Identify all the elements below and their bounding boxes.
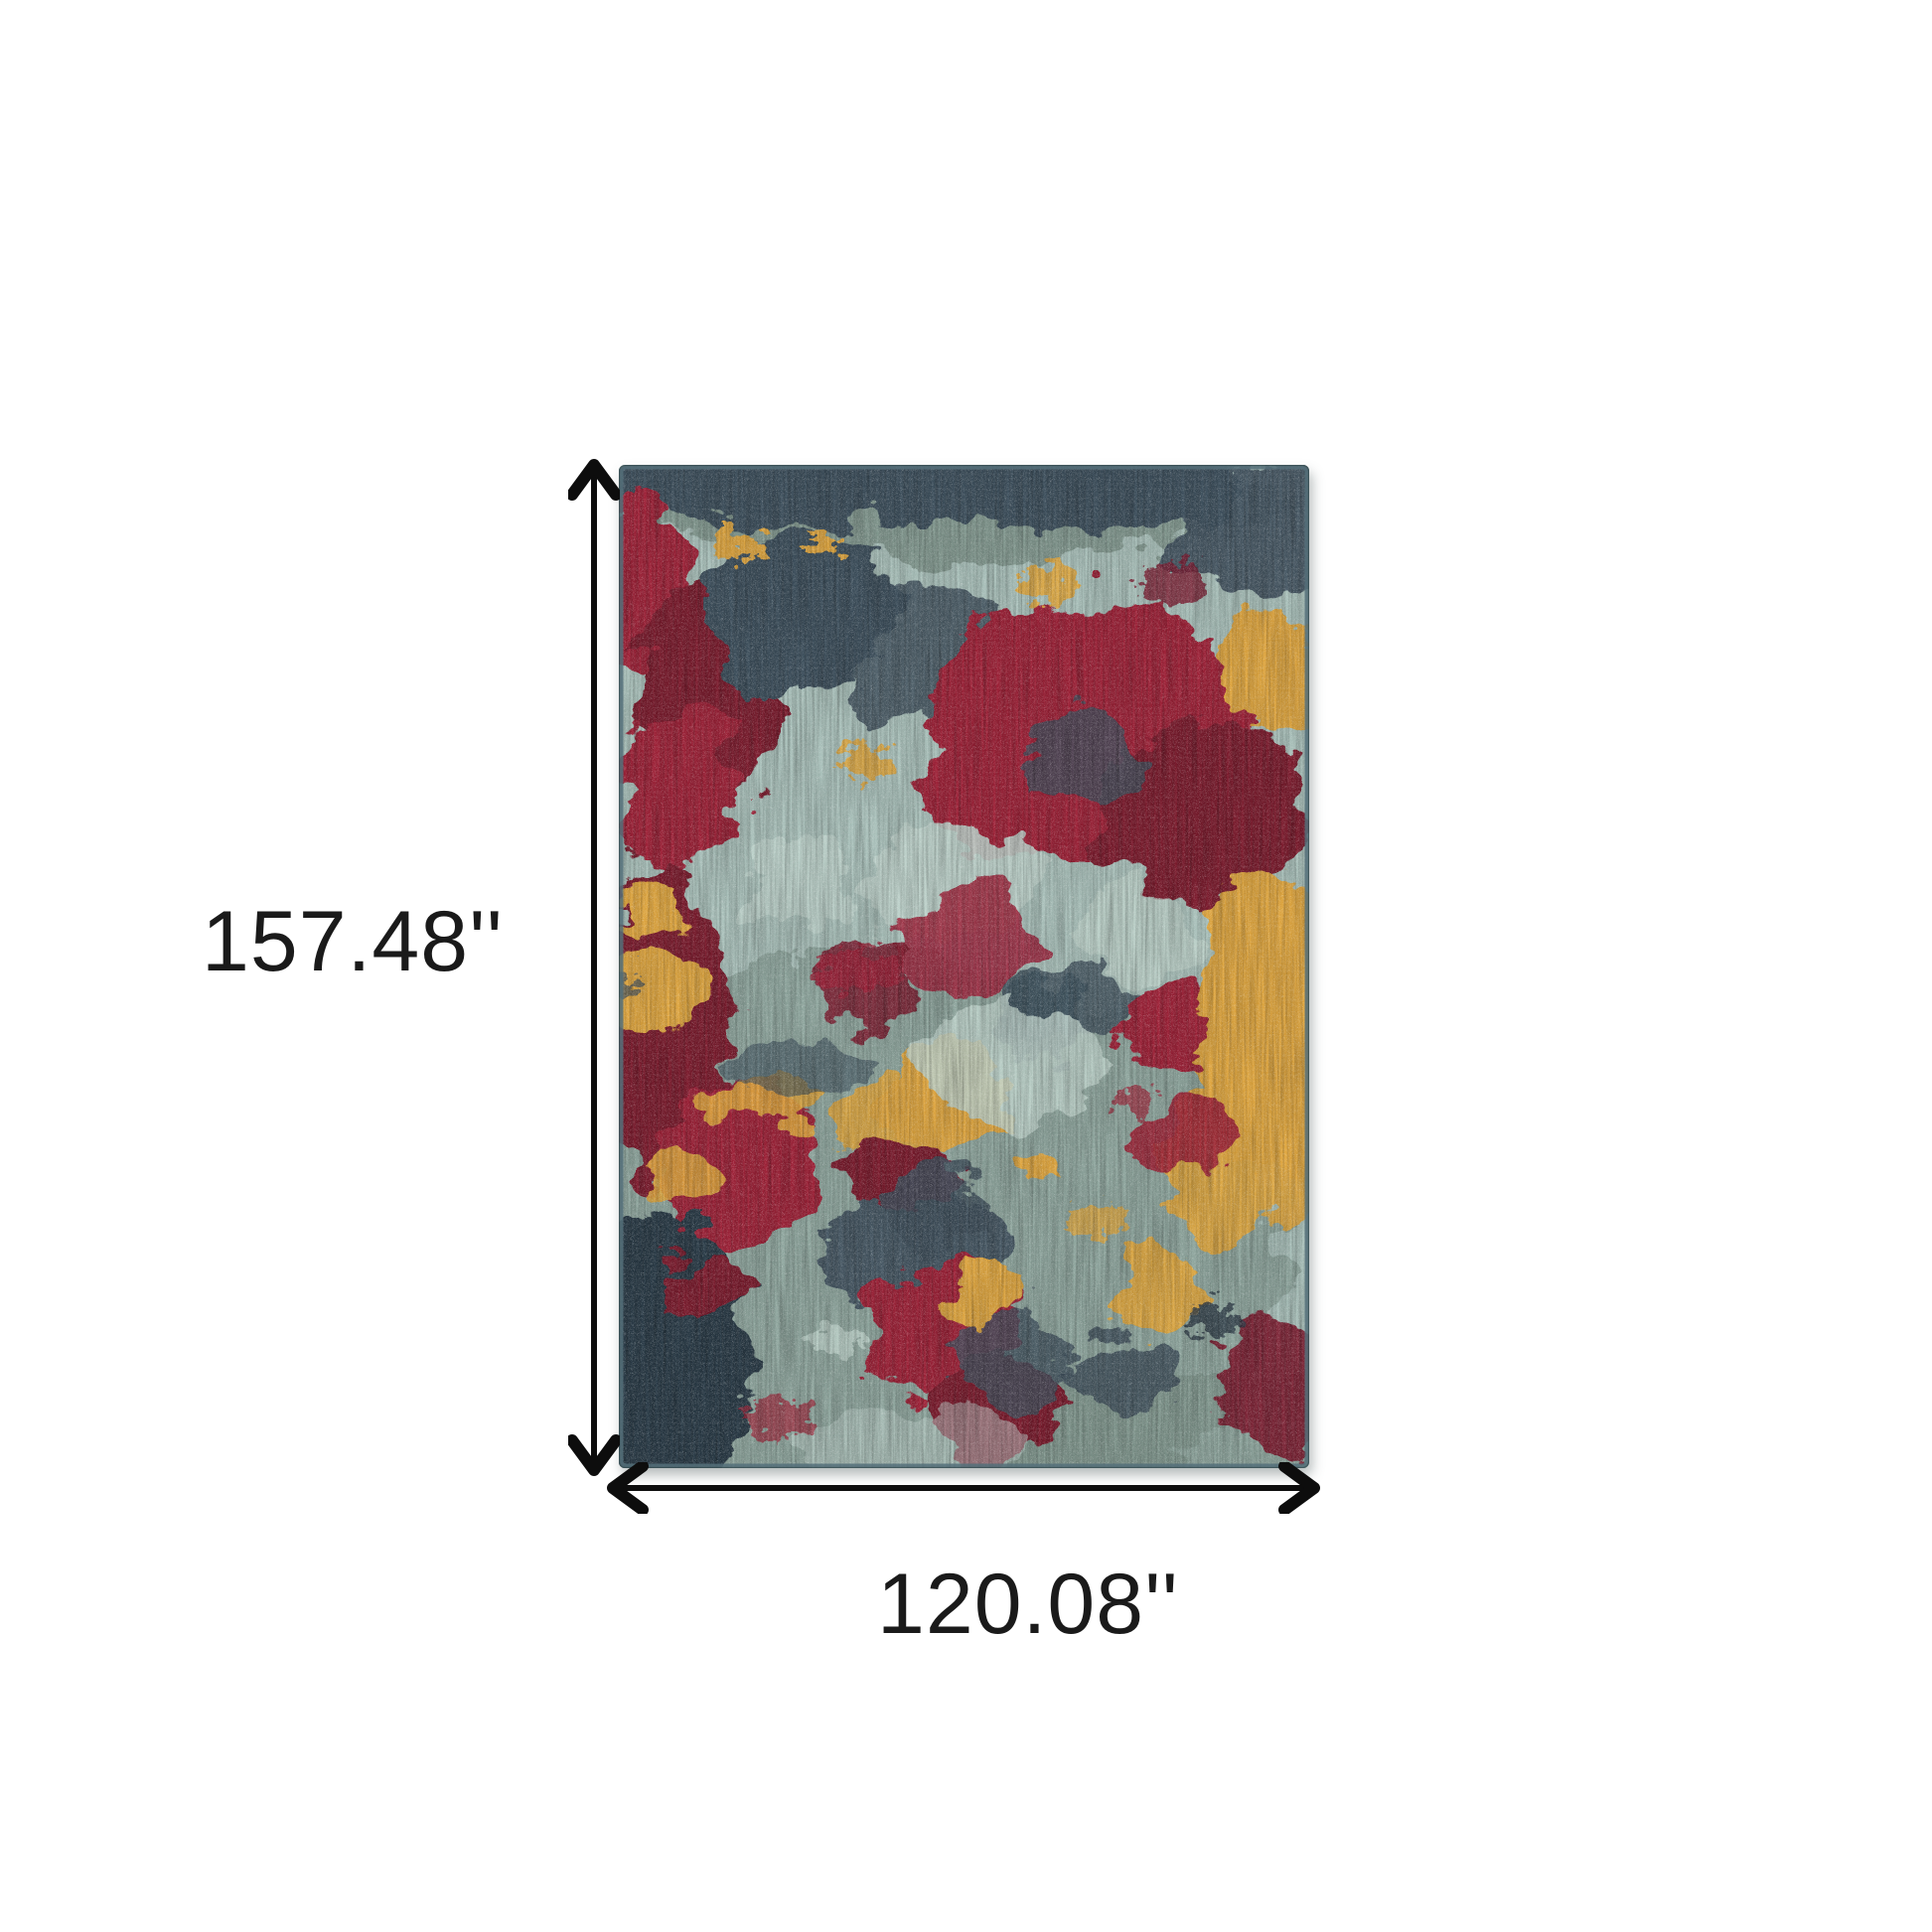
product-dimension-image: 157.48'' 120.08'' xyxy=(0,0,1932,1932)
rug-abstract-pattern xyxy=(619,465,1309,1468)
rug-photo xyxy=(619,465,1309,1468)
width-dimension-label: 120.08'' xyxy=(834,1561,1222,1647)
vertical-double-arrow-icon xyxy=(568,453,620,1482)
height-dimension-label: 157.48'' xyxy=(159,899,546,984)
horizontal-double-arrow-icon xyxy=(601,1462,1326,1514)
